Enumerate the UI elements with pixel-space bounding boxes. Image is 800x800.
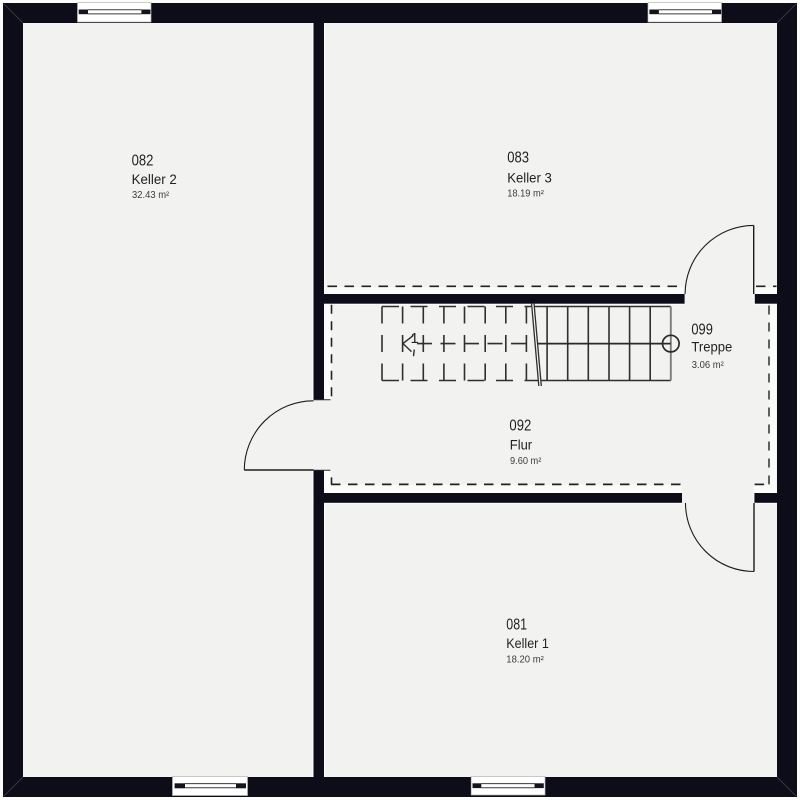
svg-text:082: 082 — [132, 152, 154, 169]
svg-text:Keller 3: Keller 3 — [507, 169, 552, 185]
svg-text:081: 081 — [506, 617, 527, 634]
svg-text:Flur: Flur — [510, 436, 533, 452]
svg-text:18.20 m²: 18.20 m² — [506, 655, 544, 666]
svg-text:099: 099 — [691, 322, 713, 339]
svg-text:Treppe: Treppe — [691, 338, 732, 354]
svg-text:1: 1 — [411, 331, 419, 347]
svg-text:32.43 m²: 32.43 m² — [132, 190, 170, 201]
svg-text:092: 092 — [509, 418, 531, 435]
svg-text:Keller 2: Keller 2 — [132, 171, 177, 187]
svg-text:18.19 m²: 18.19 m² — [507, 189, 544, 200]
svg-text:Keller 1: Keller 1 — [506, 635, 549, 651]
svg-text:3.06 m²: 3.06 m² — [692, 360, 725, 371]
svg-text:083: 083 — [507, 150, 529, 167]
svg-text:9.60 m²: 9.60 m² — [510, 456, 542, 467]
